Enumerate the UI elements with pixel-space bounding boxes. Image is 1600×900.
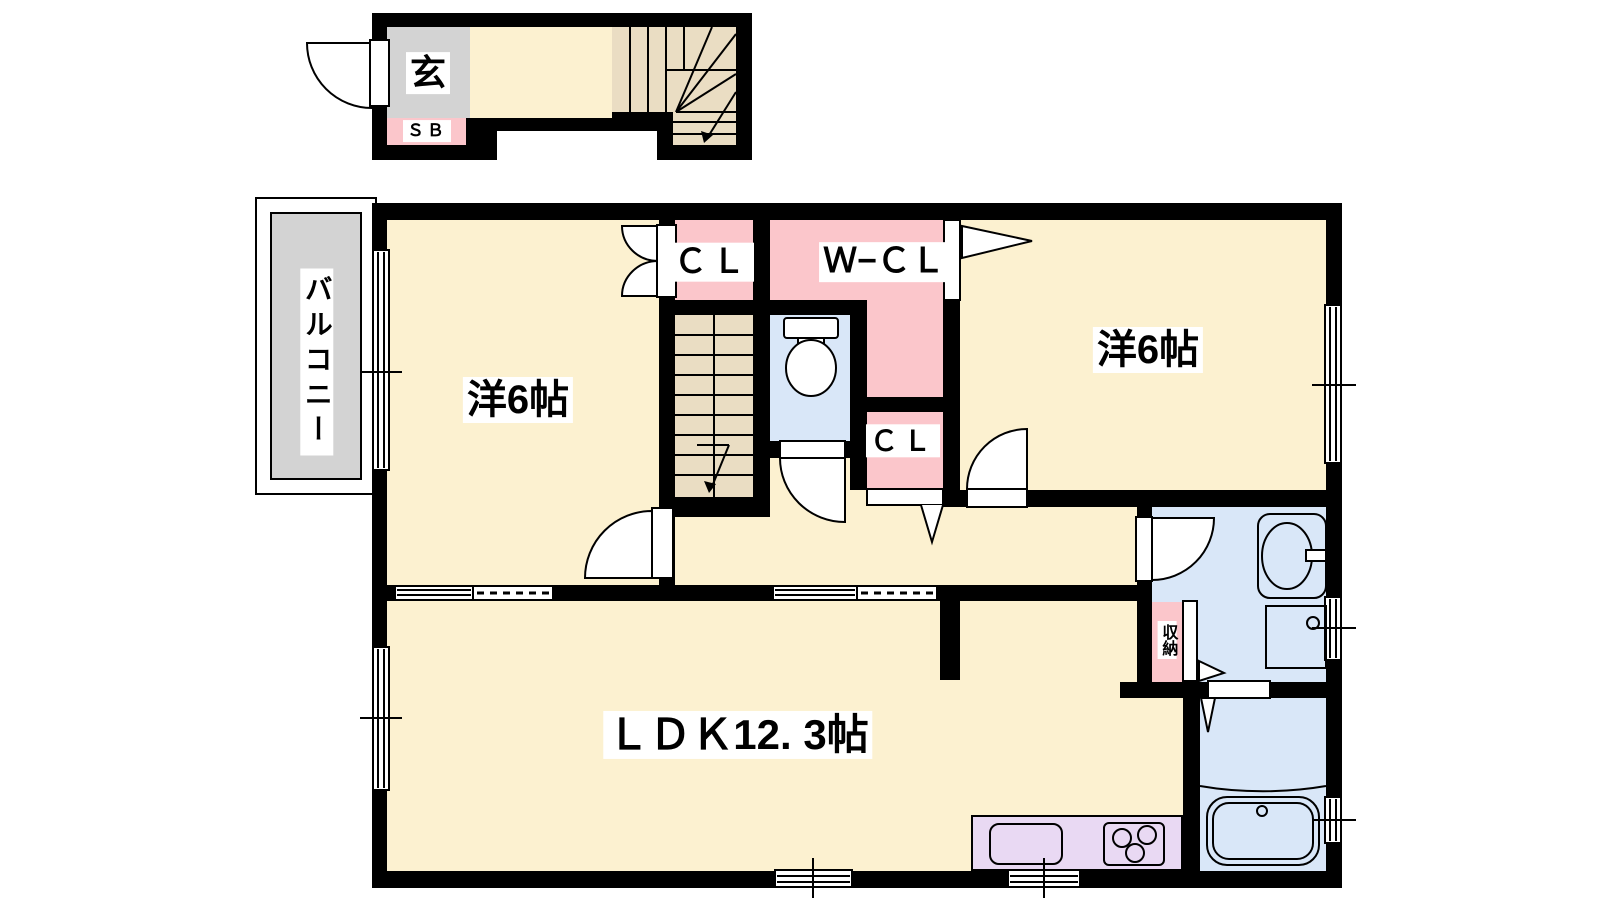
transom-hall xyxy=(773,586,937,600)
transom-west xyxy=(395,586,553,600)
room-label-balcony: バルコニー xyxy=(300,269,333,456)
front-door xyxy=(307,40,389,108)
storage-door xyxy=(1183,601,1224,681)
room-label-east-room: 洋6帖 xyxy=(1093,327,1203,373)
room-label-shoebox: ＳＢ xyxy=(403,120,451,142)
window-ldk-bottom xyxy=(775,858,852,898)
window-west-room xyxy=(360,250,402,470)
closet-mid-door xyxy=(867,489,943,542)
room-label-closet-top: ＣＬ xyxy=(670,243,754,282)
stove-icon xyxy=(1104,823,1164,865)
closet-top-door xyxy=(622,225,676,297)
kitchen-sink-icon xyxy=(990,824,1062,864)
vanity-sink-icon xyxy=(1258,514,1326,598)
room-label-walkin-closet: Ｗ−ＣＬ xyxy=(819,242,949,282)
upper-stairs-treads xyxy=(630,27,736,143)
bathtub-icon xyxy=(1200,786,1326,865)
room-label-west-room: 洋6帖 xyxy=(463,377,573,423)
east-room-door xyxy=(967,429,1027,507)
window-ldk-left xyxy=(360,647,402,790)
toilet-icon xyxy=(784,318,838,396)
floor-plan: 玄 ＳＢ バルコニー 洋6帖 洋6帖 ＣＬ Ｗ−ＣＬ ＣＬ 収納 ＬＤＫ12. … xyxy=(0,0,1600,900)
toilet-door xyxy=(780,441,845,522)
room-label-ldk: ＬＤＫ12. 3帖 xyxy=(603,711,872,759)
washer-pan-icon xyxy=(1266,606,1326,668)
washroom-door xyxy=(1136,517,1214,581)
room-label-closet-mid: ＣＬ xyxy=(866,424,940,457)
window-east-room xyxy=(1312,305,1356,463)
room-label-entrance: 玄 xyxy=(406,52,450,94)
walkin-closet-door xyxy=(944,220,1032,300)
west-room-door xyxy=(585,508,673,578)
main-stairs-treads xyxy=(675,315,753,497)
bath-door xyxy=(1201,681,1270,732)
plan-linework xyxy=(0,0,1600,900)
room-label-storage: 収納 xyxy=(1158,621,1177,659)
